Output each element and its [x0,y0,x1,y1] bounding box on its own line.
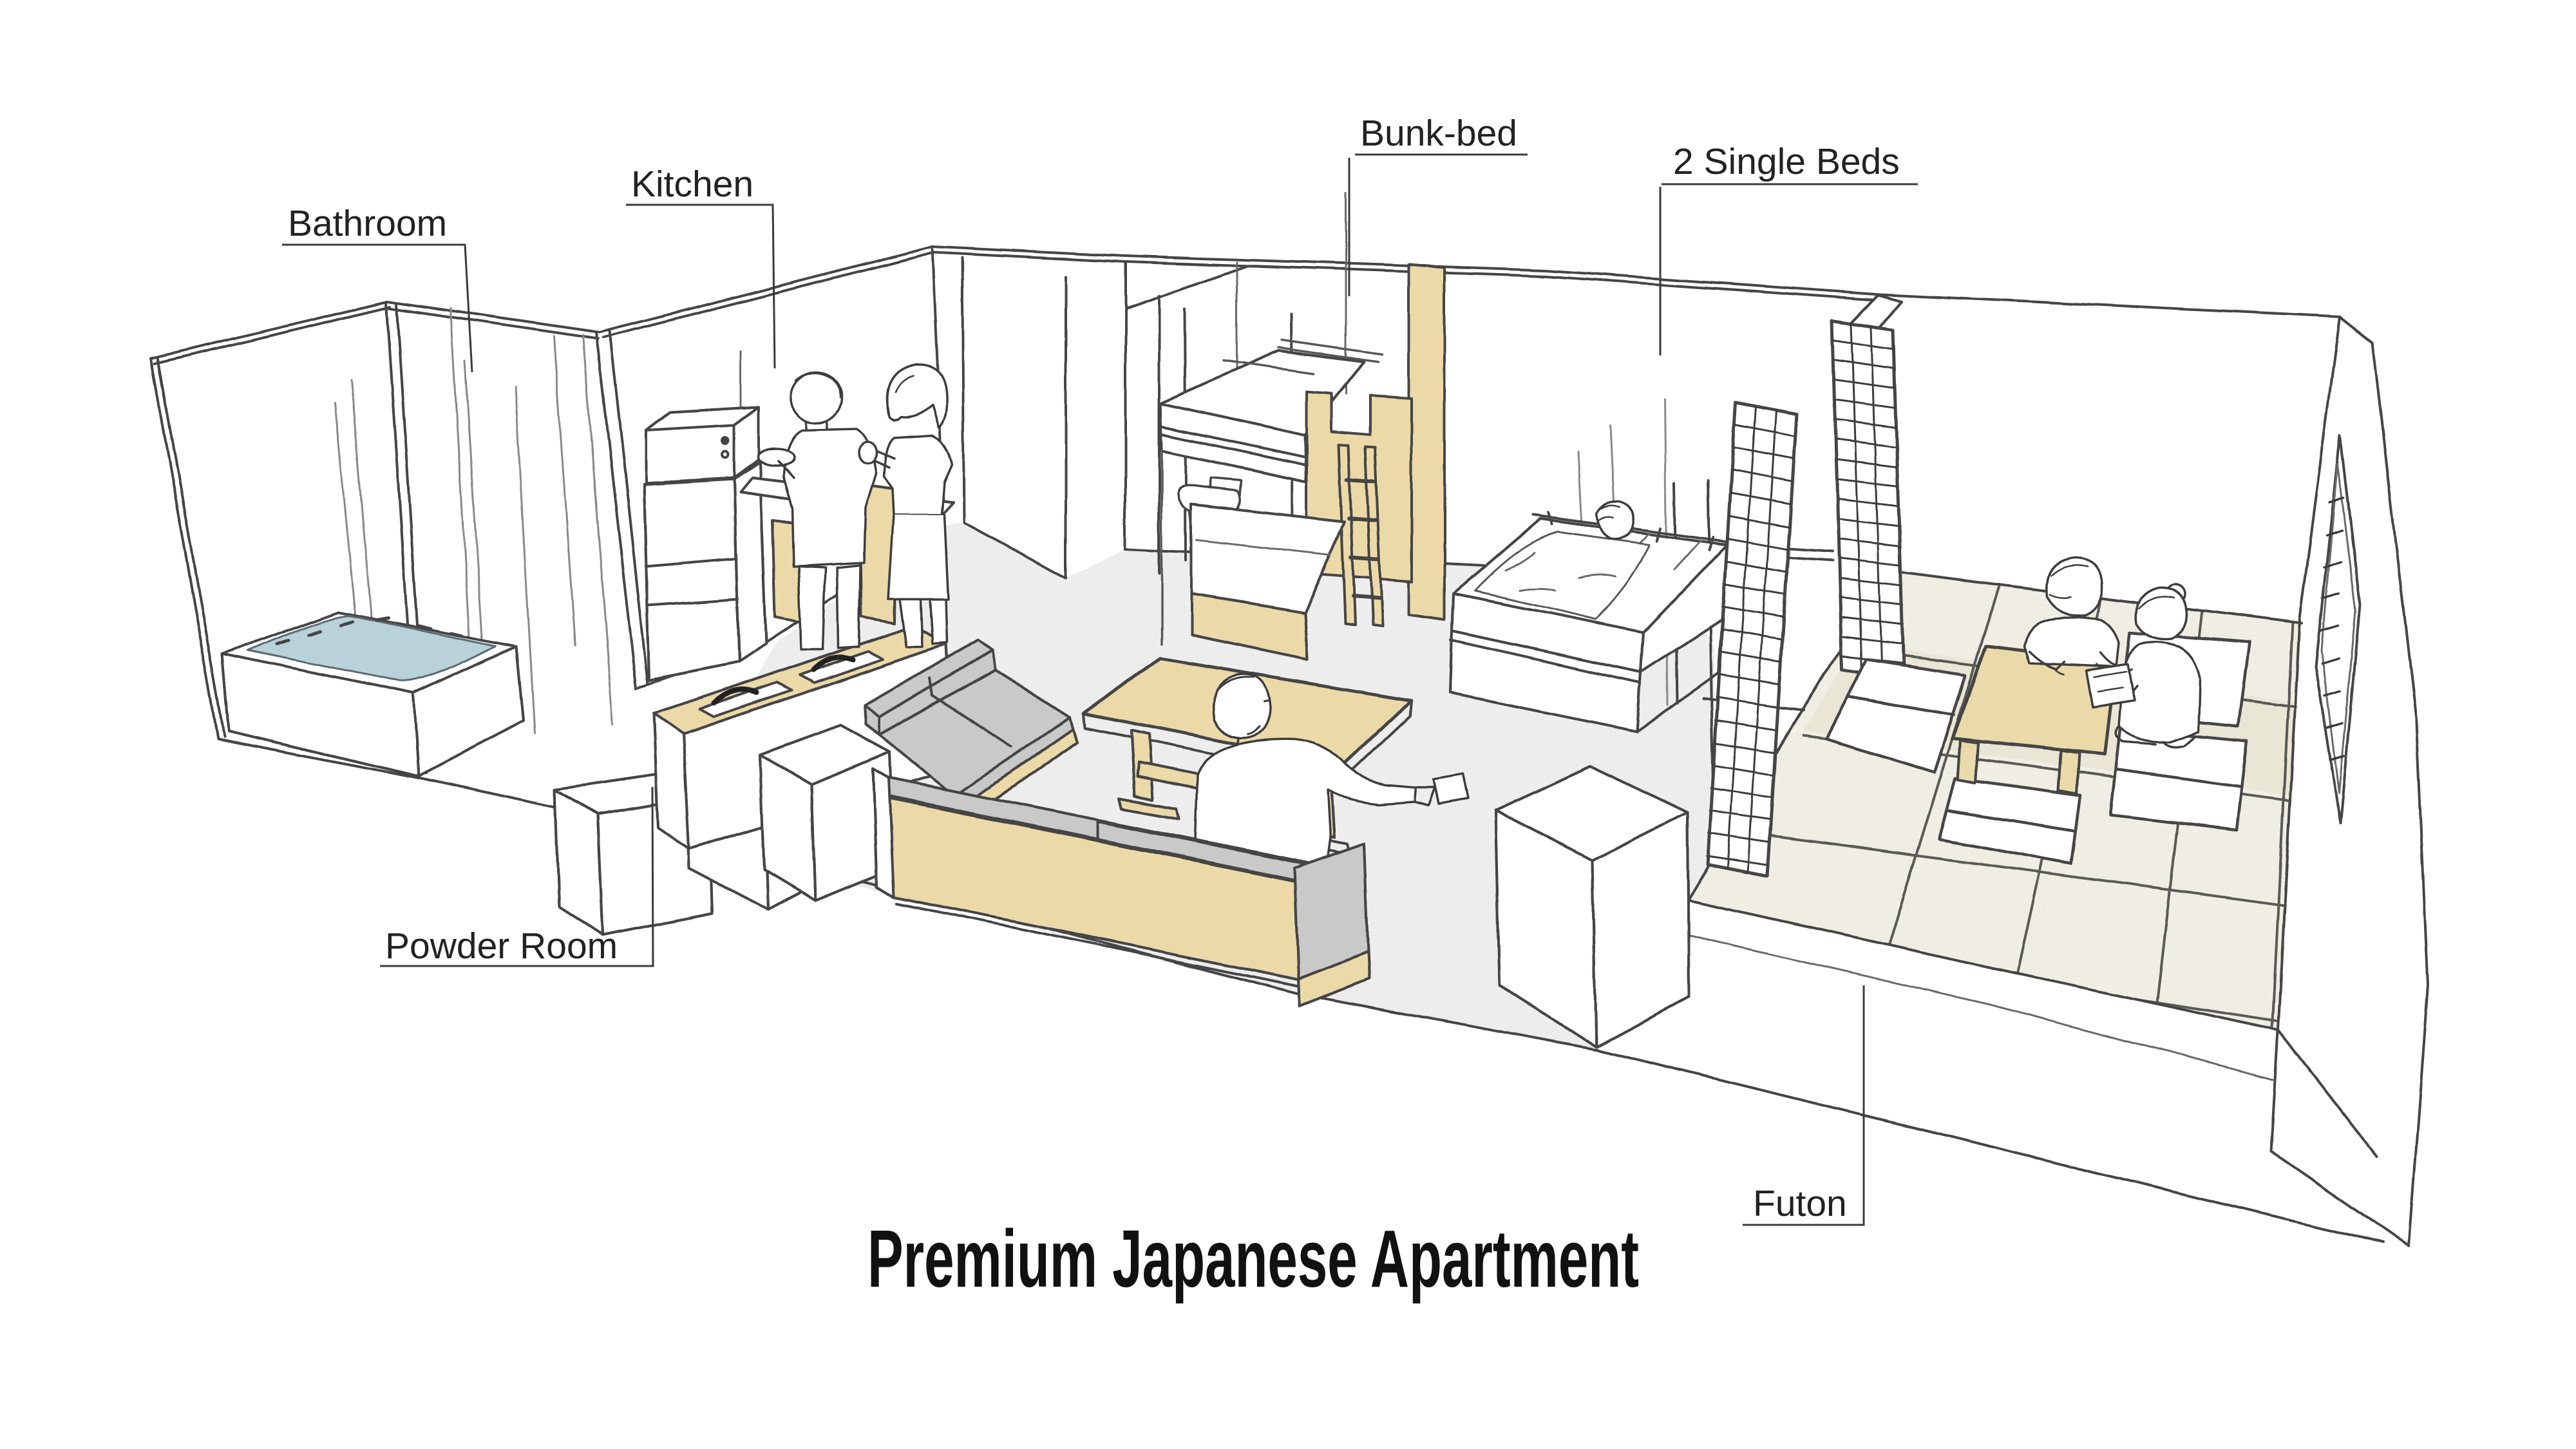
svg-text:Powder Room: Powder Room [385,925,618,967]
svg-text:Bunk-bed: Bunk-bed [1360,113,1517,154]
svg-text:Bathroom: Bathroom [288,203,447,244]
svg-text:Premium Japanese Apartment: Premium Japanese Apartment [867,1213,1639,1304]
svg-text:Kitchen: Kitchen [631,164,753,205]
svg-text:2 Single Beds: 2 Single Beds [1673,141,1900,182]
svg-text:Futon: Futon [1753,1183,1847,1224]
